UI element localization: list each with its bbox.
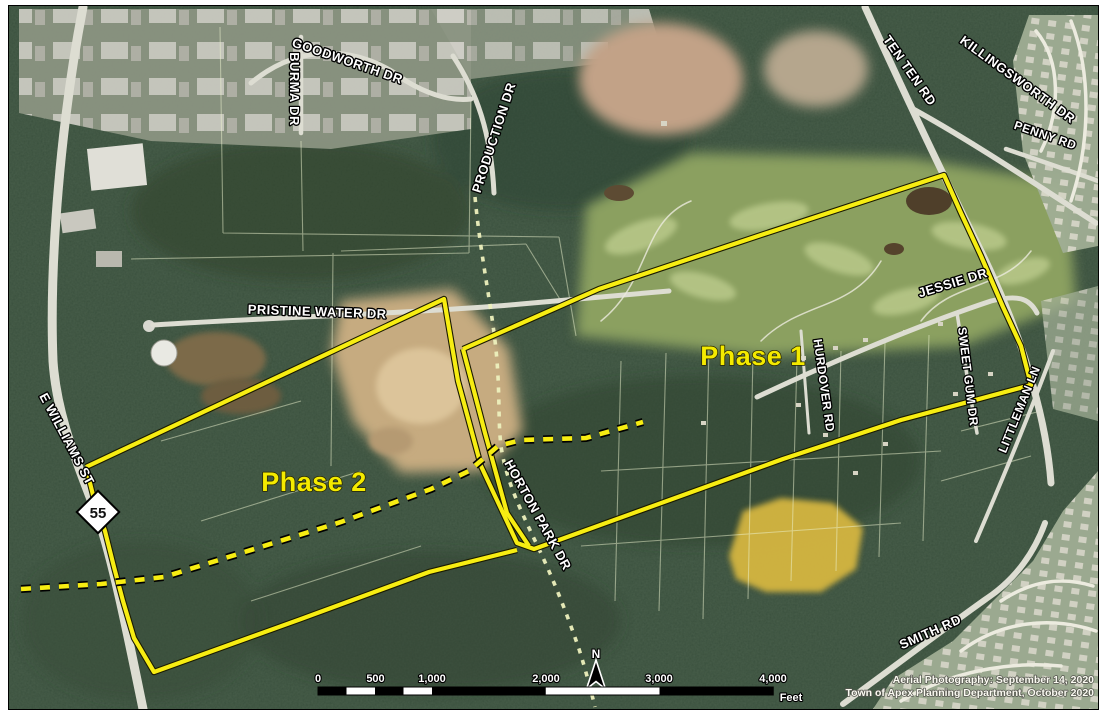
scale-tick-1000: 1,000 — [418, 673, 446, 685]
phase-1-label: Phase 1 — [700, 341, 806, 371]
attribution-line-1: Aerial Photography: September 14, 2020 — [893, 674, 1094, 686]
aerial-imagery — [9, 6, 1098, 709]
scale-unit-label: Feet — [780, 692, 803, 704]
scale-tick-4000: 4,000 — [759, 673, 787, 685]
map-canvas: GOODWORTH DR BURMA DR PRODUCTION DR TEN … — [9, 6, 1098, 709]
aerial-map: GOODWORTH DR BURMA DR PRODUCTION DR TEN … — [8, 5, 1099, 710]
road-label-burma-dr: BURMA DR — [287, 52, 302, 126]
attribution-line-2: Town of Apex Planning Department, Octobe… — [845, 687, 1094, 699]
scale-tick-500: 500 — [366, 673, 384, 685]
scale-tick-3000: 3,000 — [645, 673, 673, 685]
scale-tick-2000: 2,000 — [532, 673, 560, 685]
route-55-number: 55 — [90, 505, 107, 522]
phase-2-label: Phase 2 — [261, 467, 367, 497]
scale-tick-0: 0 — [315, 673, 321, 685]
screenshot: GOODWORTH DR BURMA DR PRODUCTION DR TEN … — [0, 0, 1104, 716]
